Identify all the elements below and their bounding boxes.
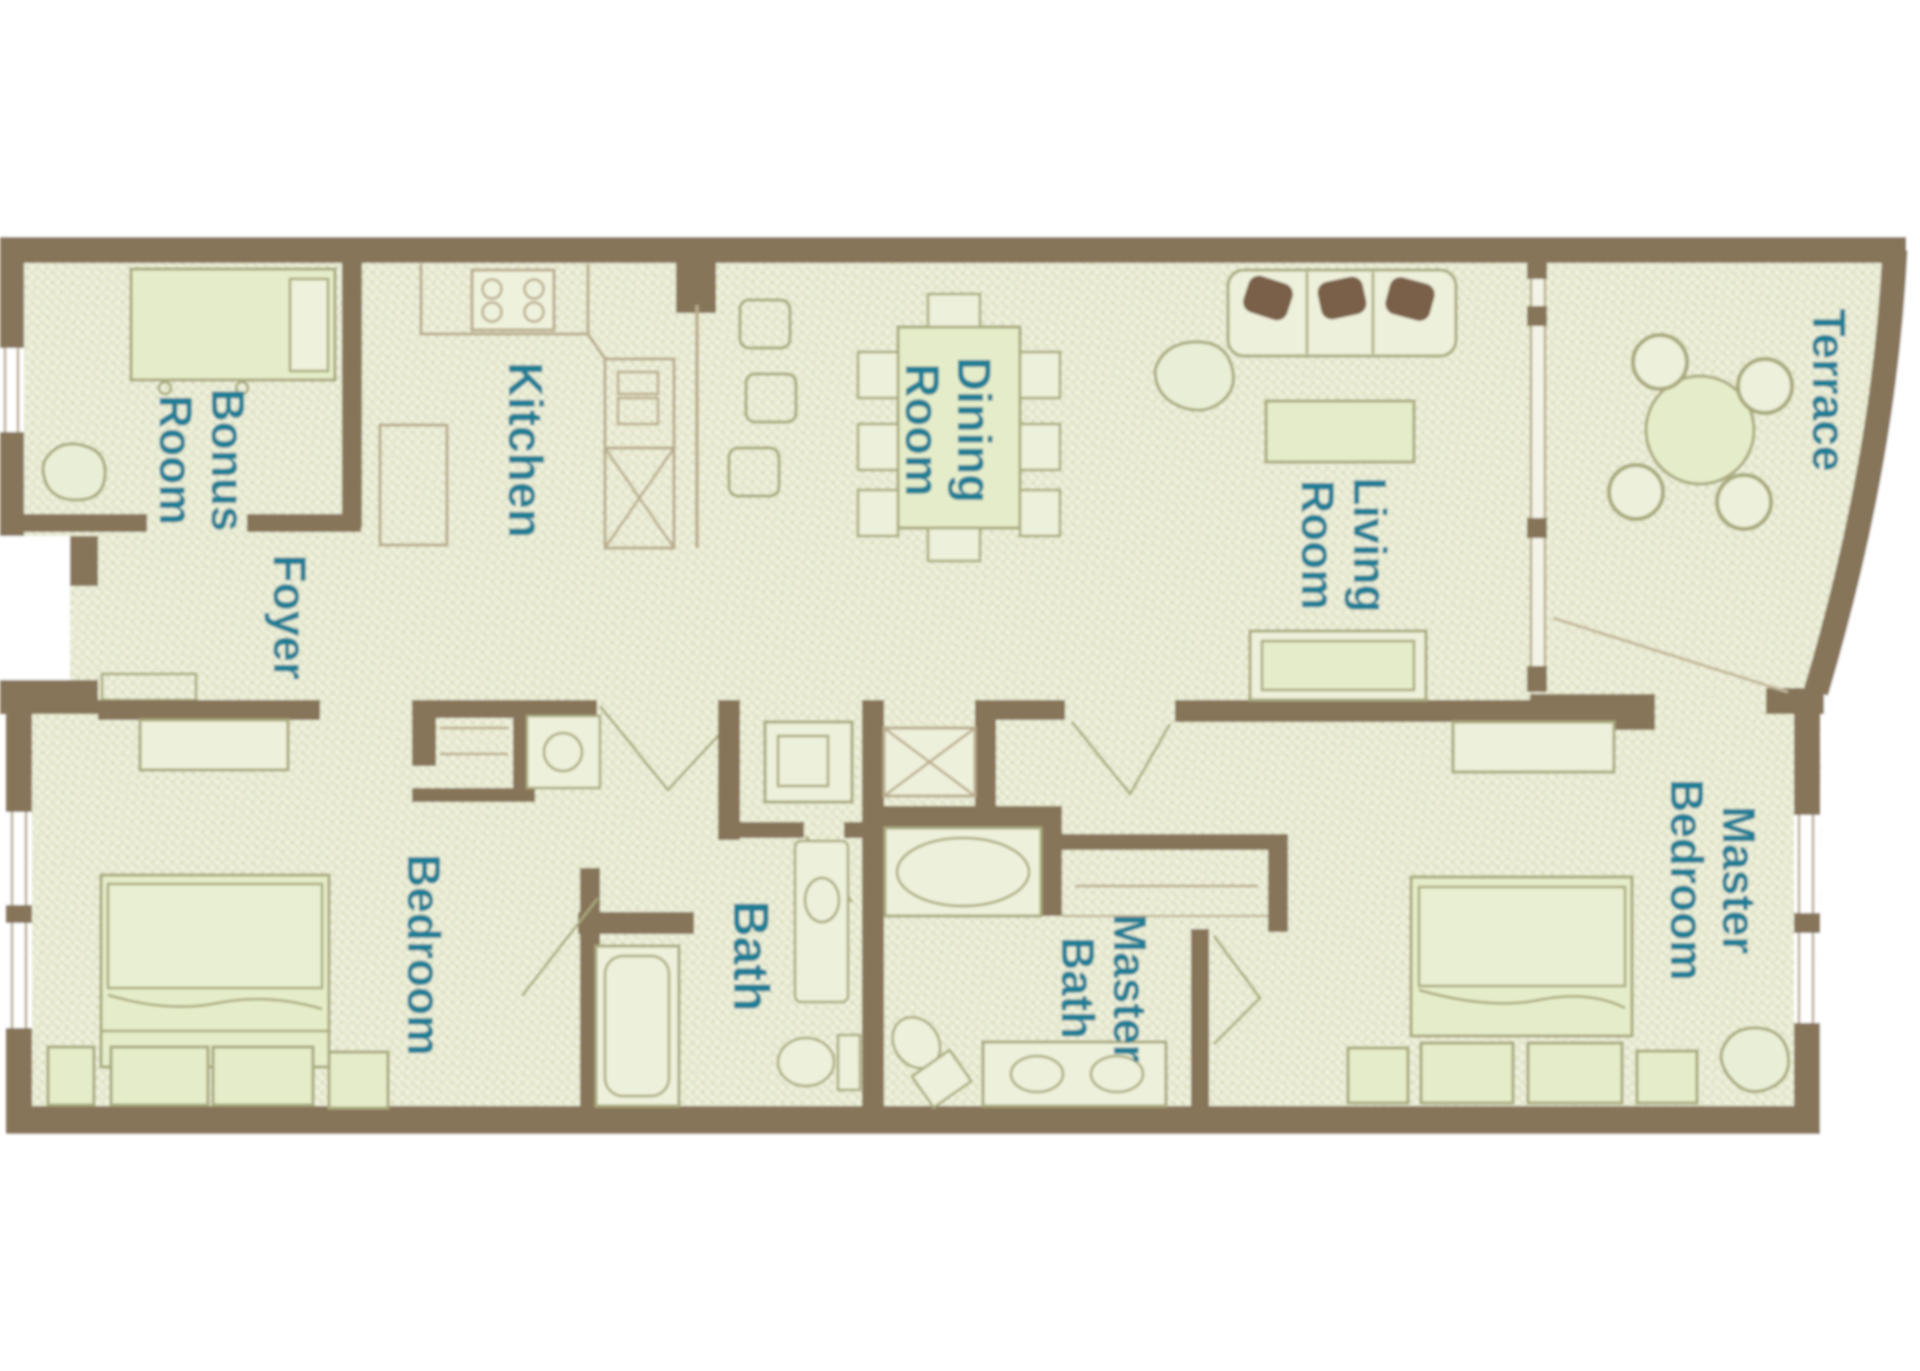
svg-text:DiningRoom: DiningRoom bbox=[896, 357, 1001, 503]
svg-text:Terrace: Terrace bbox=[1803, 309, 1855, 472]
svg-text:LivingRoom: LivingRoom bbox=[1292, 477, 1396, 612]
svg-text:Bath: Bath bbox=[723, 900, 779, 1011]
svg-text:Bedroom: Bedroom bbox=[398, 854, 450, 1056]
svg-text:Foyer: Foyer bbox=[264, 554, 316, 679]
svg-text:BonusRoom: BonusRoom bbox=[150, 388, 254, 531]
svg-text:Kitchen: Kitchen bbox=[498, 362, 551, 538]
svg-text:MasterBedroom: MasterBedroom bbox=[1661, 779, 1765, 981]
